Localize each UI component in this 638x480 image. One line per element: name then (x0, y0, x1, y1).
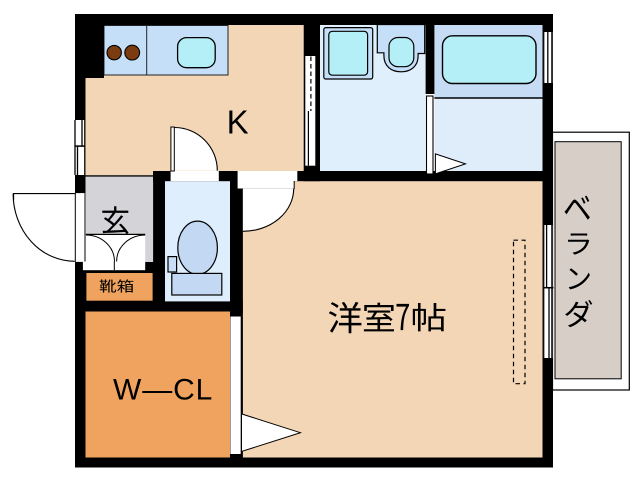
svg-text:W—CL: W—CL (113, 373, 213, 406)
svg-text:K: K (227, 104, 249, 141)
